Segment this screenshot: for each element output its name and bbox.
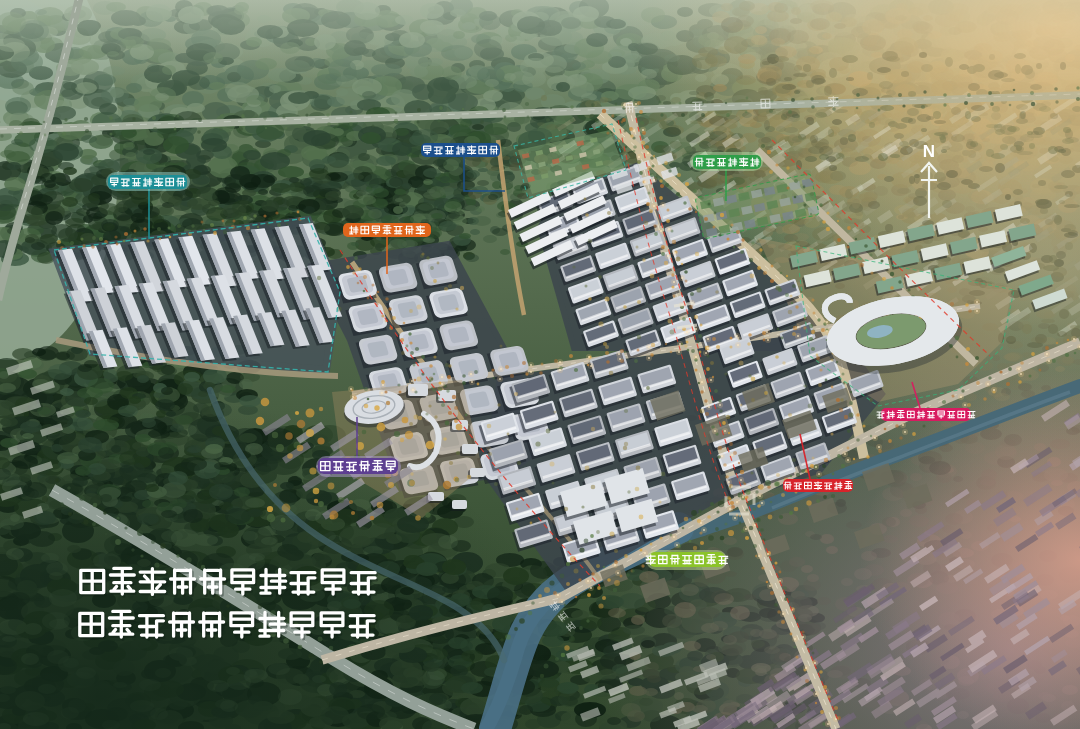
svg-text:N: N [923, 142, 935, 161]
